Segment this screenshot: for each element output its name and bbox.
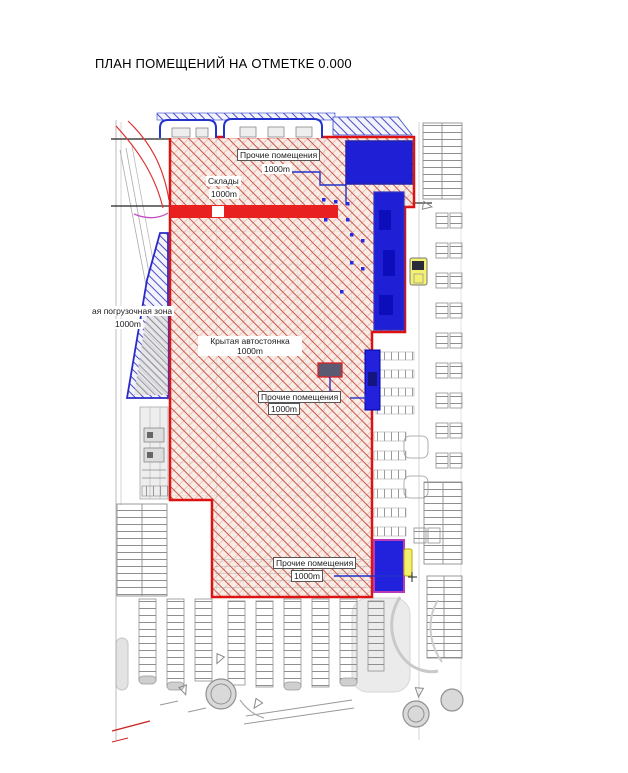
room-area-loading-zone: 1000m	[113, 319, 143, 329]
room-label-covered-parking: Крытая автостоянка 1000m	[198, 336, 302, 356]
document-page: ПЛАН ПОМЕЩЕНИЙ НА ОТМЕТКЕ 0.000	[0, 0, 628, 773]
entrance-canopies	[157, 113, 412, 138]
room-label-other-mid: Прочие помещения	[258, 391, 341, 403]
dock-equipment	[140, 407, 168, 499]
red-service-bar	[170, 205, 338, 218]
room-area: 1000m	[200, 346, 300, 356]
room-label-loading-zone: ая погрузочная зона	[90, 306, 174, 316]
floor-plan: Прочие помещения 1000m Склады 1000m Крыт…	[0, 0, 628, 773]
room-area-other-bottom: 1000m	[291, 570, 323, 582]
room-area-other-top: 1000m	[262, 164, 292, 174]
room-area-other-mid: 1000m	[268, 403, 300, 415]
equipment-marker	[318, 363, 342, 377]
yellow-strip-marker	[404, 549, 412, 576]
blue-block-top-right	[346, 141, 412, 184]
blue-block-bottom	[374, 540, 404, 592]
room-area-warehouses: 1000m	[209, 189, 239, 199]
roof-blue-hatch	[333, 117, 412, 135]
yellow-gate-marker	[410, 258, 427, 285]
room-label-other-top: Прочие помещения	[237, 149, 320, 161]
room-label-other-bottom: Прочие помещения	[273, 557, 356, 569]
site-plan-drawing	[0, 0, 628, 773]
room-label-warehouses: Склады	[206, 176, 241, 186]
room-name: Крытая автостоянка	[200, 336, 300, 346]
blue-block-east	[374, 192, 404, 330]
